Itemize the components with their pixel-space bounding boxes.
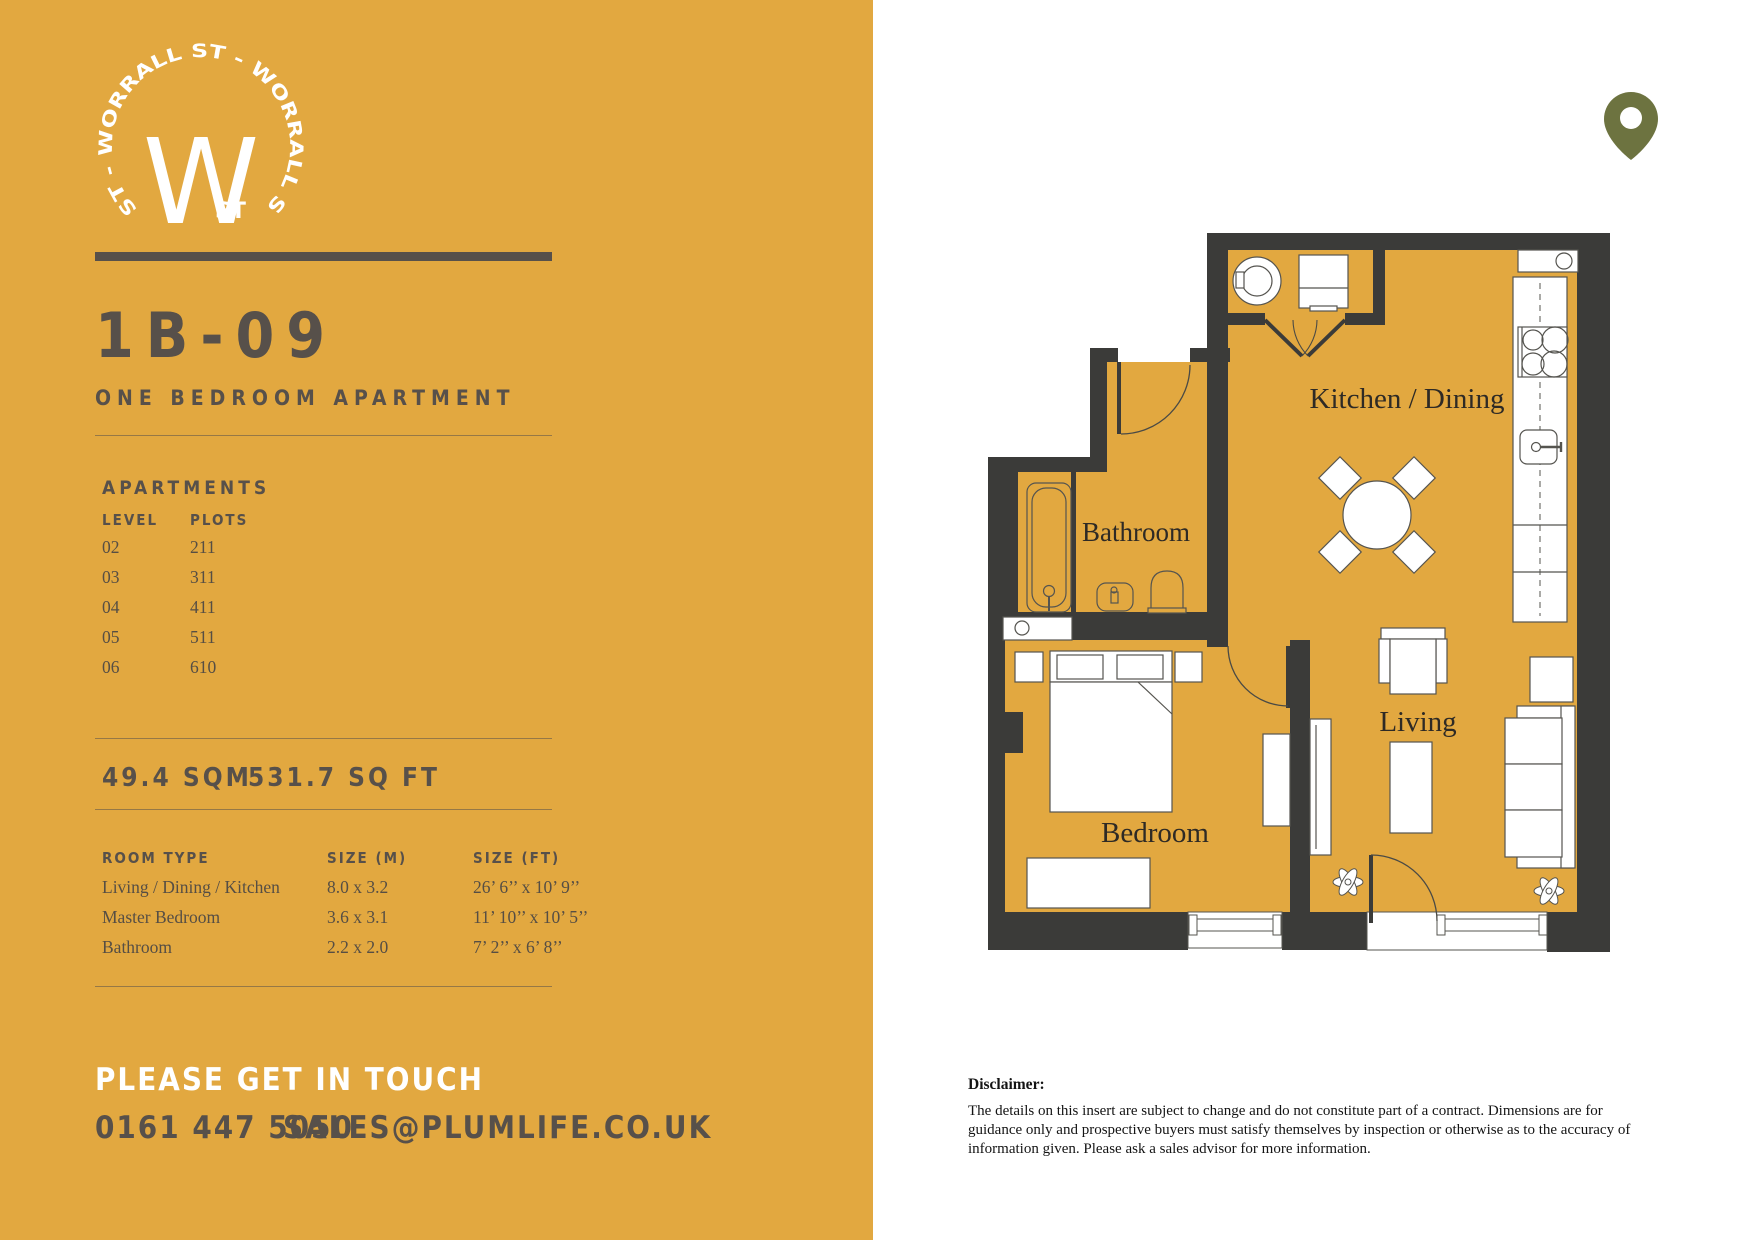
wall-hall-kitchen	[1207, 233, 1228, 647]
wall-bathroom-left	[988, 457, 1018, 612]
storage-unit	[1299, 255, 1348, 308]
room-label-kitchen: Kitchen / Dining	[1310, 383, 1505, 415]
divider-thick	[95, 252, 552, 261]
wardrobe-living	[1310, 719, 1331, 855]
side-table	[1530, 657, 1573, 702]
apartments-heading: APARTMENTS	[102, 477, 270, 499]
page-subtitle: ONE BEDROOM APARTMENT	[95, 386, 515, 410]
window-cap	[1539, 915, 1547, 935]
table-row: 05	[102, 627, 120, 648]
wall-bottom-mid	[1282, 912, 1367, 950]
basin-tap	[1111, 592, 1118, 603]
col-header-level: LEVEL	[102, 511, 158, 529]
table-row: 03	[102, 567, 120, 588]
table-cell: 8.0 x 3.2	[327, 877, 388, 898]
divider-1	[95, 435, 552, 436]
disclaimer: Disclaimer: The details on this insert a…	[968, 1076, 1644, 1160]
sofa-cushion	[1505, 764, 1562, 810]
bathtub-inner	[1032, 488, 1066, 607]
window-cap	[1189, 915, 1197, 935]
table-row: 06	[102, 657, 120, 678]
disclaimer-body: The details on this insert are subject t…	[968, 1102, 1644, 1160]
room-label-living: Living	[1379, 706, 1456, 738]
sofa-cushion	[1505, 718, 1562, 764]
location-pin-icon	[1599, 90, 1663, 162]
disclaimer-heading: Disclaimer:	[968, 1076, 1644, 1094]
floor-hall	[1107, 362, 1208, 472]
toilet	[1151, 571, 1183, 611]
table-row: 02	[102, 537, 120, 558]
table-cell: 610	[190, 657, 216, 678]
table-cell: 311	[190, 567, 216, 588]
wall-bottom-right	[1547, 912, 1577, 952]
col-header-plots: PLOTS	[190, 511, 248, 529]
table-cell: 2.2 x 2.0	[327, 937, 388, 958]
logo-monogram-sub: ST	[215, 199, 246, 224]
window-cap	[1437, 915, 1445, 935]
wardrobe-bedroom	[1263, 734, 1290, 826]
table-cell: 26’ 6’’ x 10’ 9’’	[473, 877, 580, 898]
table-row: Master Bedroom	[102, 907, 220, 928]
sofa-back	[1561, 706, 1575, 868]
bathroom-sliding-door	[1071, 468, 1076, 614]
pillow	[1057, 655, 1103, 679]
nightstand	[1175, 652, 1202, 682]
area-sqm: 49.4 SQM	[102, 763, 252, 793]
room-label-bedroom: Bedroom	[1101, 817, 1209, 849]
armchair-arm	[1436, 639, 1447, 683]
bathroom-shelf	[1003, 617, 1072, 640]
nightstand	[1015, 652, 1043, 682]
divider-4	[95, 986, 552, 987]
wall-closet-stub-right	[1345, 313, 1385, 325]
table-cell: 11’ 10’’ x 10’ 5’’	[473, 907, 588, 928]
toilet-base	[1148, 608, 1186, 613]
bed	[1050, 682, 1172, 812]
wall-entry-right	[1190, 348, 1230, 362]
logo-monogram: W	[143, 113, 260, 251]
floorplan: Kitchen / Dining Bathroom Bedroom Living	[870, 180, 1640, 1040]
table-row: Bathroom	[102, 937, 172, 958]
table-cell: 511	[190, 627, 216, 648]
window-cap	[1273, 915, 1281, 935]
wall-right	[1577, 233, 1610, 952]
wall-closet-stub-left	[1228, 313, 1265, 325]
col-header-room-type: ROOM TYPE	[102, 849, 210, 867]
table-cell: 7’ 2’’ x 6’ 8’’	[473, 937, 563, 958]
wall-bottom-bedroom	[988, 912, 1188, 950]
contact-email[interactable]: SALES@PLUMLIFE.CO.UK	[283, 1110, 712, 1146]
table-cell: 3.6 x 3.1	[327, 907, 388, 928]
divider-3	[95, 809, 552, 810]
left-panel: ST - WORRALL ST - WORRALL ST W ST 1B-09 …	[0, 0, 873, 1240]
table-cell: 411	[190, 597, 216, 618]
divider-2	[95, 738, 552, 739]
col-header-size-ft: SIZE (FT)	[473, 849, 560, 867]
bedroom-window-recess	[1188, 912, 1282, 948]
entry-door-leaf	[1117, 362, 1121, 434]
area-sqft: 531.7 SQ FT	[248, 763, 440, 793]
contact-heading: PLEASE GET IN TOUCH	[95, 1062, 484, 1098]
bedroom-door-leaf	[1286, 646, 1290, 708]
col-header-size-m: SIZE (M)	[327, 849, 407, 867]
armchair-arm	[1379, 639, 1390, 683]
worrall-st-logo: ST - WORRALL ST - WORRALL ST W ST	[84, 32, 329, 257]
table-row: Living / Dining / Kitchen	[102, 877, 280, 898]
washing-machine-detail	[1236, 272, 1244, 288]
table-row: 04	[102, 597, 120, 618]
armchair-seat	[1390, 639, 1436, 694]
page-title: 1B-09	[95, 305, 337, 367]
dining-table	[1343, 481, 1411, 549]
wall-column	[1005, 712, 1023, 753]
wall-bedroom-left	[988, 612, 1005, 912]
wall-top	[1207, 233, 1610, 250]
balcony-door-leaf	[1369, 855, 1373, 923]
storage-unit-detail	[1310, 306, 1337, 311]
wall-bedroom-living	[1290, 640, 1310, 912]
wall-hall-left	[1090, 348, 1107, 472]
table-cell: 211	[190, 537, 216, 558]
brochure-page: ST - WORRALL ST - WORRALL ST W ST 1B-09 …	[0, 0, 1753, 1240]
dresser	[1027, 858, 1150, 908]
pillow	[1117, 655, 1163, 679]
coffee-table	[1390, 742, 1432, 833]
kitchen-top-counter	[1518, 250, 1578, 272]
sofa-cushion	[1505, 810, 1562, 857]
room-label-bathroom: Bathroom	[1082, 517, 1190, 547]
windows	[1188, 912, 1547, 950]
armchair-back	[1381, 628, 1445, 639]
